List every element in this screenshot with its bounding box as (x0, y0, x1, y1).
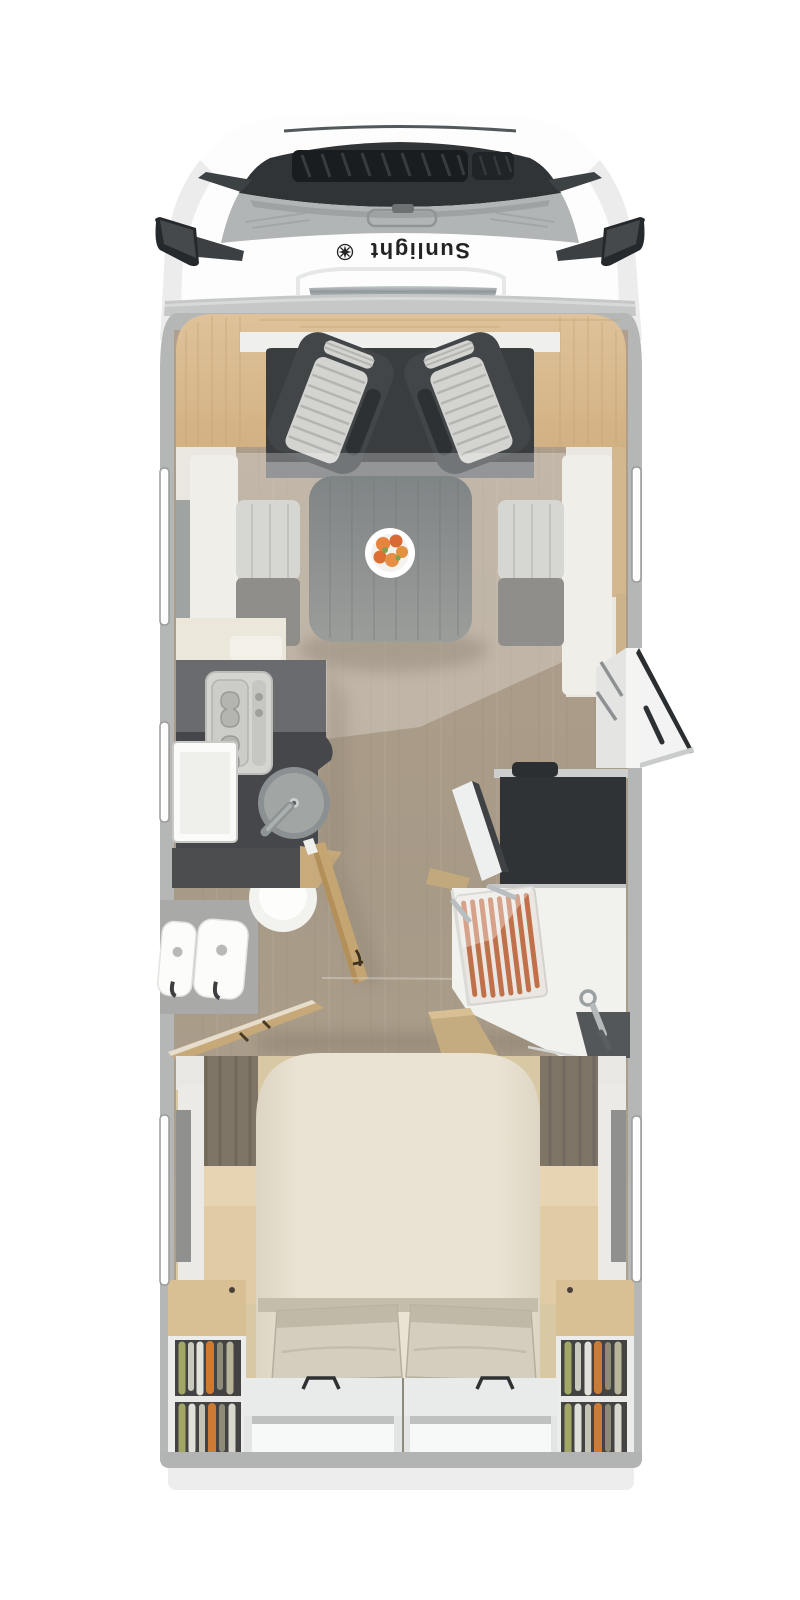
svg-text:Sunlight: Sunlight (369, 238, 470, 263)
